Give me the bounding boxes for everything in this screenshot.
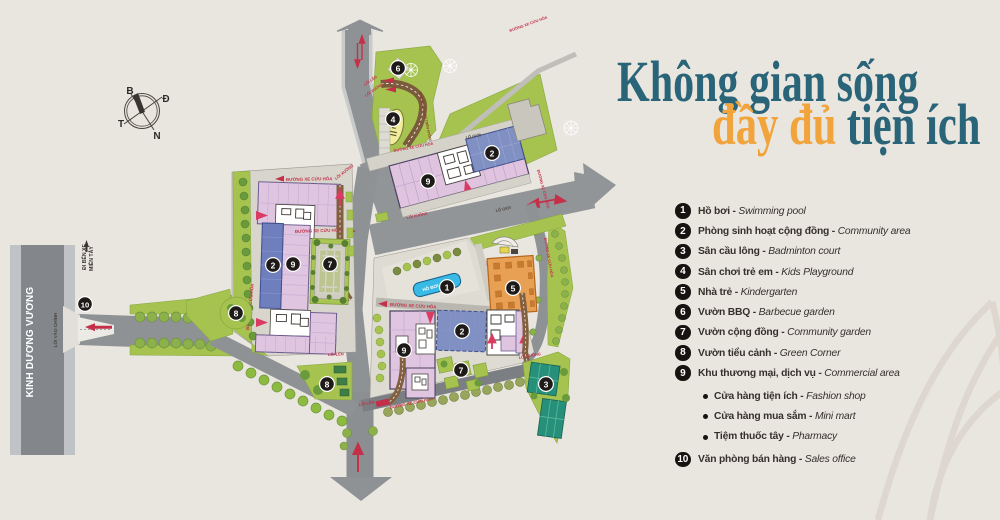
svg-text:3: 3 [544,379,549,389]
svg-text:2: 2 [460,326,465,336]
svg-text:T: T [118,119,124,130]
svg-text:ĐƯỜNG XE CỨU HỎA: ĐƯỜNG XE CỨU HỎA [286,176,333,182]
svg-text:9: 9 [291,259,296,269]
svg-text:8: 8 [325,379,330,389]
svg-text:6: 6 [396,63,401,73]
svg-text:2: 2 [490,148,495,158]
svg-text:1: 1 [445,282,450,292]
svg-text:9: 9 [402,345,407,355]
svg-text:10: 10 [81,300,89,309]
svg-text:4: 4 [391,114,396,124]
svg-text:LỐI LÊN: LỐI LÊN [328,351,344,357]
svg-text:B: B [126,86,133,97]
svg-text:5: 5 [511,283,516,293]
svg-text:N: N [153,131,160,142]
svg-text:9: 9 [426,176,431,186]
svg-text:8: 8 [234,308,239,318]
svg-text:7: 7 [328,259,333,269]
svg-text:KINH DƯƠNG VƯƠNG: KINH DƯƠNG VƯƠNG [25,287,36,398]
svg-text:LỐI VÀO CHÍNH: LỐI VÀO CHÍNH [51,312,58,347]
svg-text:ĐƯỜNG XE CỨU HỎA: ĐƯỜNG XE CỨU HỎA [509,14,549,33]
svg-text:2: 2 [271,260,276,270]
svg-text:Đ: Đ [162,94,169,105]
svg-text:7: 7 [459,365,464,375]
svg-text:MIỀN TÂY: MIỀN TÂY [88,246,95,271]
